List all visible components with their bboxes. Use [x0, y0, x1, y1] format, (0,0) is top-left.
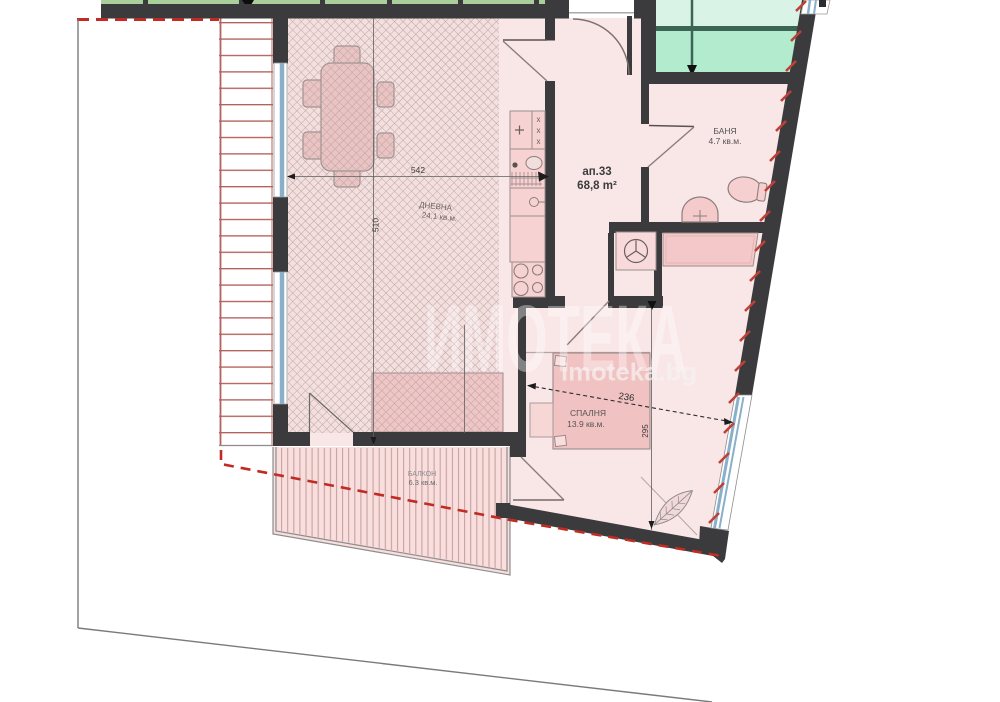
- svg-text:БАНЯ: БАНЯ: [713, 126, 736, 136]
- svg-text:x: x: [537, 126, 541, 135]
- svg-text:542: 542: [411, 165, 425, 175]
- svg-text:13.9 кв.м.: 13.9 кв.м.: [567, 419, 605, 429]
- svg-text:imoteka.bg: imoteka.bg: [561, 359, 697, 387]
- svg-text:6.3 кв.м.: 6.3 кв.м.: [408, 478, 437, 487]
- svg-text:x: x: [537, 115, 541, 124]
- svg-text:510: 510: [371, 218, 381, 232]
- svg-text:68,8 m²: 68,8 m²: [577, 180, 617, 192]
- svg-text:ап.33: ап.33: [582, 166, 611, 178]
- svg-text:x: x: [537, 137, 541, 146]
- svg-text:БАЛКОН: БАЛКОН: [408, 471, 436, 478]
- svg-text:СПАЛНЯ: СПАЛНЯ: [570, 408, 606, 418]
- svg-text:4.7 кв.м.: 4.7 кв.м.: [709, 136, 742, 146]
- svg-text:295: 295: [641, 424, 650, 438]
